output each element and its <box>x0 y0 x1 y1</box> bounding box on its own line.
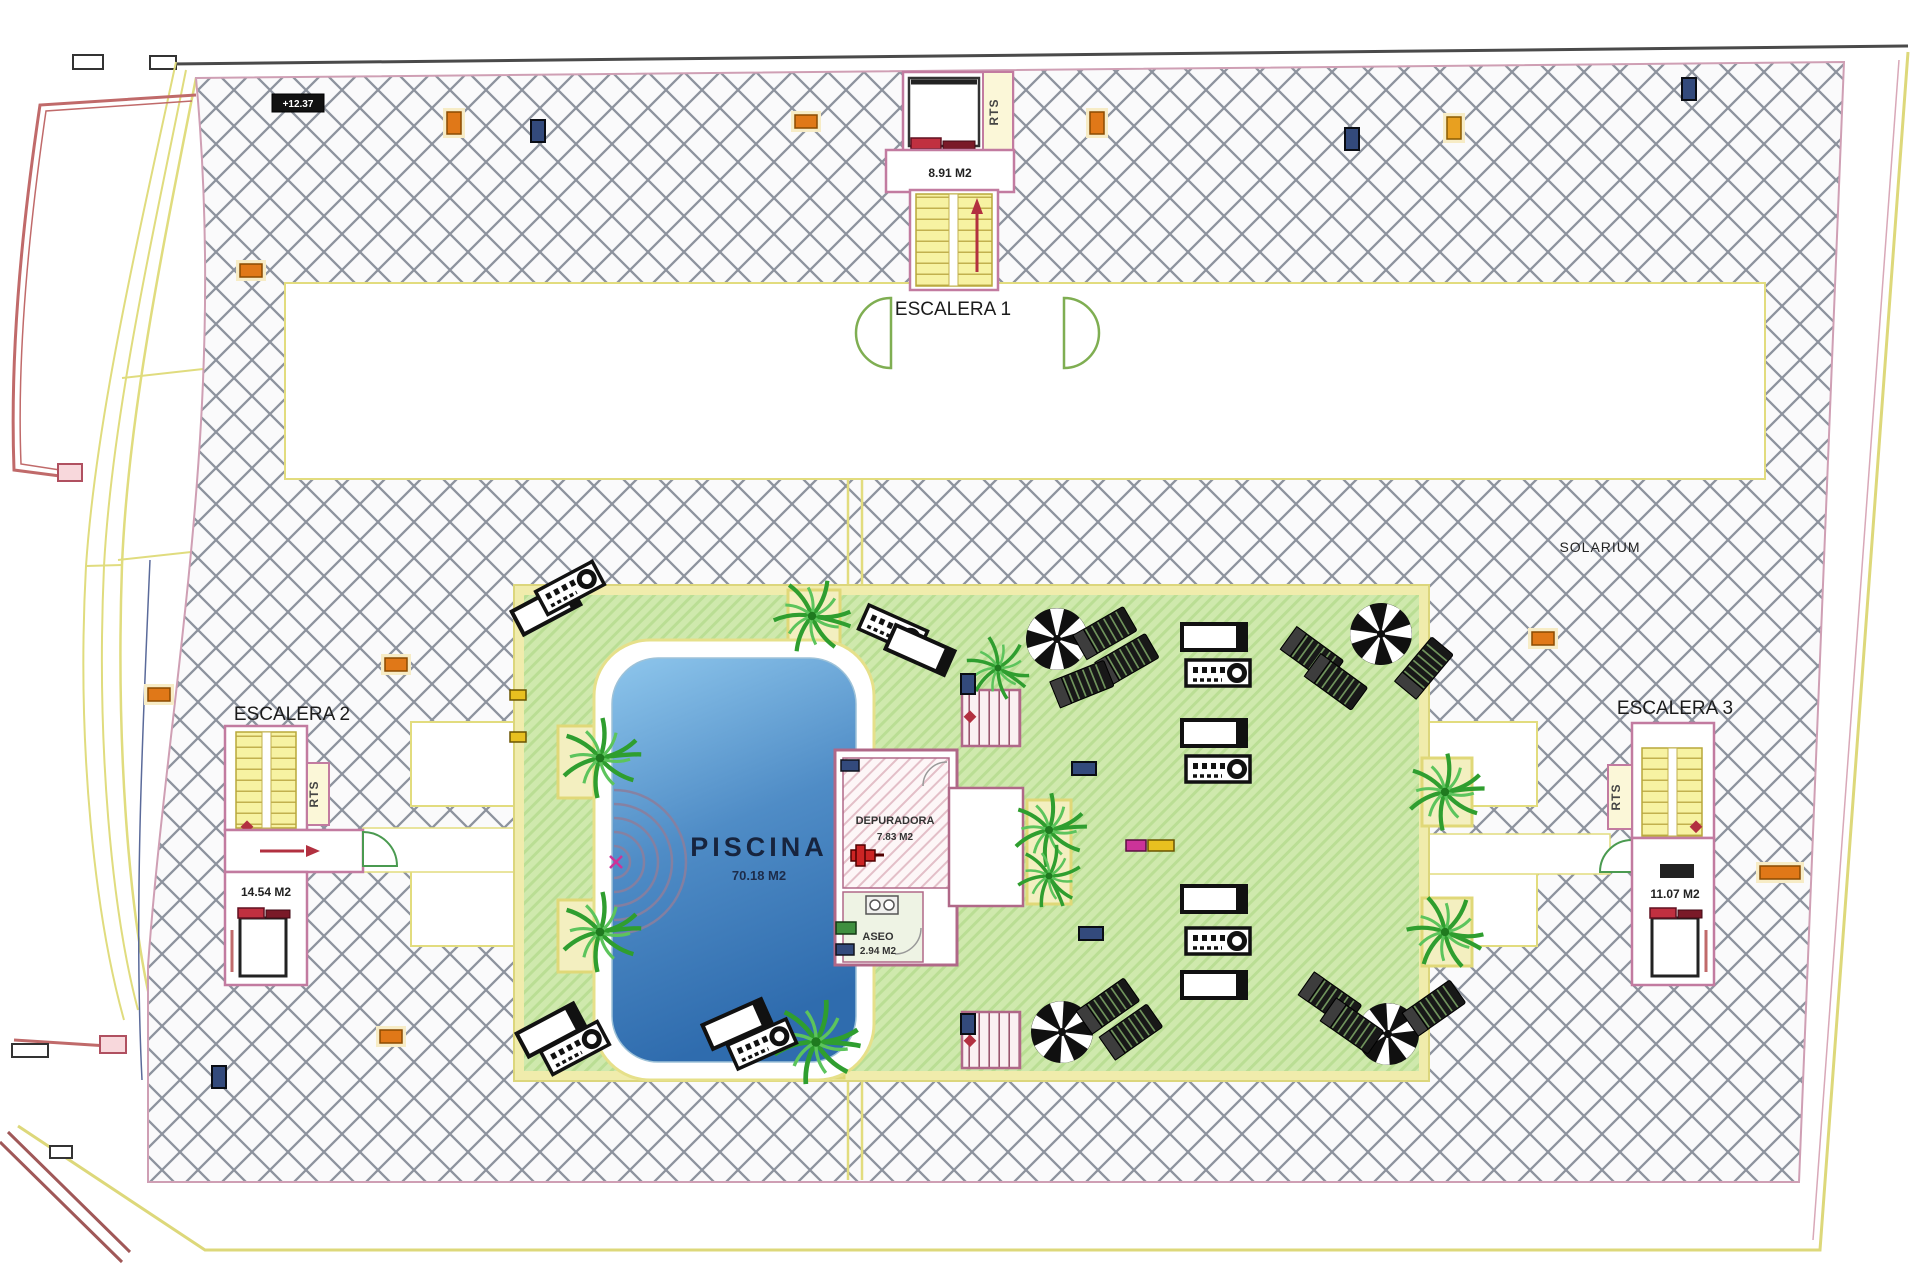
marker-magenta <box>1126 840 1146 851</box>
marker-orange <box>381 654 411 675</box>
escalera2-label: ESCALERA 2 <box>234 704 350 725</box>
facade-box <box>150 56 176 69</box>
escalera3-area-label: 11.07 M2 <box>1650 887 1700 901</box>
escalera3-label: ESCALERA 3 <box>1617 698 1733 719</box>
escalera2-area-label: 14.54 M2 <box>241 885 291 899</box>
marker-blue <box>961 674 975 694</box>
marker-blue <box>1072 762 1096 775</box>
marker-yellow <box>510 690 526 700</box>
elevator <box>909 78 979 149</box>
marker-yellow <box>1148 840 1174 851</box>
rts-label: RTS <box>307 781 321 808</box>
marker-blue <box>1345 128 1359 150</box>
floor-plan-page: PISCINA 70.18 M2 DEPURADORA 7.83 M2 <box>0 0 1920 1280</box>
depuradora-area-label: 7.83 M2 <box>877 832 914 843</box>
marker-orange <box>376 1026 406 1047</box>
stair-flight <box>910 190 998 290</box>
top-property-line <box>170 46 1908 64</box>
marker-orange <box>1756 862 1804 883</box>
rooftop-plan-drawing: PISCINA 70.18 M2 DEPURADORA 7.83 M2 <box>0 0 1920 1280</box>
marker-orange <box>1086 108 1108 138</box>
escalera1-area-label: 8.91 M2 <box>928 166 972 180</box>
rts-shaft: RTS <box>983 72 1013 152</box>
marker-green <box>836 922 856 934</box>
garden-stair-top <box>962 690 1020 746</box>
elevator <box>1650 908 1706 976</box>
depuradora-label: DEPURADORA <box>856 815 935 827</box>
pool-area-label: 70.18 M2 <box>732 868 786 883</box>
marker-yellow <box>510 732 526 742</box>
elevator <box>232 908 290 976</box>
marker-orange <box>236 260 266 281</box>
marker-blue <box>531 120 545 142</box>
marker-orange <box>1443 113 1465 143</box>
marker-blue <box>836 944 854 955</box>
aseo-label: ASEO <box>862 931 894 943</box>
lounger <box>1186 660 1250 686</box>
rts-label: RTS <box>1609 784 1623 811</box>
level-marker-text: +12.37 <box>283 99 314 110</box>
pool-label: PISCINA <box>690 832 828 862</box>
marker-blue <box>212 1066 226 1088</box>
rts-shaft: RTS <box>1608 765 1632 829</box>
lounger <box>1182 624 1246 650</box>
lounger <box>1182 972 1246 998</box>
lounger <box>1186 928 1250 954</box>
rts-shaft: RTS <box>307 763 329 825</box>
escalera1-label: ESCALERA 1 <box>895 299 1011 320</box>
upper-roof-band <box>285 283 1765 479</box>
marker-blue <box>1682 78 1696 100</box>
marker-orange <box>1528 628 1558 649</box>
marker-orange <box>791 111 821 132</box>
sink-icon <box>866 896 898 914</box>
dark-label <box>1660 864 1694 878</box>
marker-blue <box>841 760 859 771</box>
rts-label: RTS <box>987 99 1001 126</box>
solarium-label: SOLARIUM <box>1559 539 1640 555</box>
pool-plant-room <box>949 788 1023 906</box>
marker-orange <box>443 108 465 138</box>
lounger <box>1182 720 1246 746</box>
level-marker: +12.37 <box>272 94 324 112</box>
lounger <box>1182 886 1246 912</box>
marker-blue <box>961 1014 975 1034</box>
pool-zone: PISCINA 70.18 M2 DEPURADORA 7.83 M2 <box>512 561 1499 1092</box>
lounger <box>1186 756 1250 782</box>
marker-orange <box>144 684 174 705</box>
aseo-area-label: 2.94 M2 <box>860 946 897 957</box>
marker-blue <box>1079 927 1103 940</box>
facade-box <box>73 55 103 69</box>
